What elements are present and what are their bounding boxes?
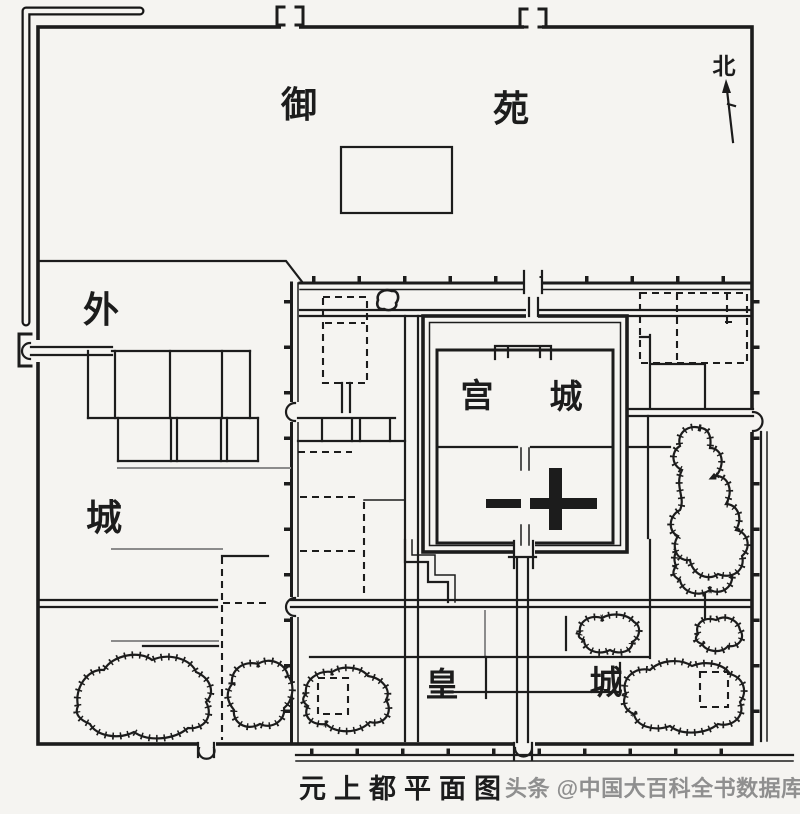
region-label-imperial-2: 城 (590, 665, 623, 702)
region-label-garden-1: 御 (280, 85, 317, 125)
palace-hall-bar (486, 499, 521, 508)
map-caption: 元上都平面图 (299, 774, 509, 804)
compound-stem (342, 383, 350, 412)
scanned-map-page: 北 御 苑 外 城 宫 城 皇 城 元上都平面图 头条 @中国大百科全书数据库 (0, 0, 800, 814)
palace-city (423, 298, 627, 568)
region-label-garden-2: 苑 (493, 89, 529, 129)
northwest-rampart-wall (26, 11, 140, 322)
palace-north-gate-opening (526, 306, 538, 318)
north-indicator: 北 (713, 54, 736, 142)
north-arrow-head (722, 79, 731, 93)
hill-shape (77, 655, 211, 739)
palace-main-gate (495, 346, 551, 359)
palace-hall-cross-horizontal (530, 498, 597, 509)
outer-city-walls (26, 11, 752, 744)
north-label: 北 (713, 54, 736, 79)
street-line (640, 335, 705, 408)
region-label-outer-2: 城 (86, 498, 122, 538)
street-line (628, 416, 670, 538)
map-canvas: 北 御 苑 外 城 宫 城 皇 城 元上都平面图 头条 @中国大百科全书数据库 (0, 0, 800, 814)
region-labels: 御 苑 外 城 宫 城 皇 城 (83, 85, 623, 704)
region-label-outer-1: 外 (83, 290, 119, 330)
garden-building (341, 147, 452, 213)
outer-west-gate-hook (22, 343, 30, 359)
street-line (118, 418, 258, 461)
dashed-compound-northeast-dividers (677, 293, 737, 363)
imperial-garden-structures (341, 147, 452, 213)
region-label-imperial-1: 皇 (426, 667, 459, 704)
street-line (405, 316, 418, 741)
palace-outer-wall-inner (430, 323, 621, 546)
street-line (88, 351, 250, 418)
outer-wall (38, 27, 752, 744)
street-line (628, 409, 753, 416)
imperial-north-gate-opening (523, 278, 543, 293)
small-pond (377, 290, 398, 310)
garden-north-gate-opening (281, 21, 299, 33)
north-arrow-icon (727, 90, 735, 142)
outer-west-gate-opening (32, 340, 44, 362)
garden-south-wall (38, 261, 303, 283)
palace-south-gate-opening (513, 541, 535, 555)
northwest-rampart-wall-core (26, 11, 140, 322)
palace-axis-walls (521, 448, 529, 545)
street-line (298, 418, 395, 441)
outer-west-gate-bracket (19, 334, 31, 366)
region-label-palace-2: 城 (550, 379, 583, 416)
street-line (509, 557, 536, 742)
street-line (291, 600, 752, 607)
watermark: 头条 @中国大百科全书数据库 (505, 776, 800, 801)
dashed-compound-northeast (640, 293, 747, 363)
street-line (38, 600, 217, 607)
region-label-palace-1: 宫 (461, 377, 494, 415)
